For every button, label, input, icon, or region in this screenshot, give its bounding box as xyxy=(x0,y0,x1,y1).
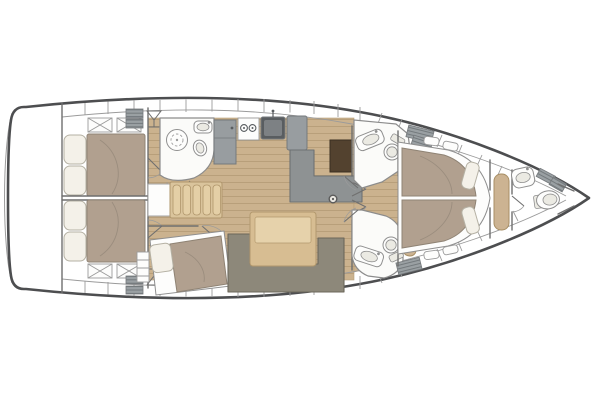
fridge xyxy=(214,120,236,164)
pillow xyxy=(149,243,174,274)
floor-plan-canvas xyxy=(0,0,600,400)
companionway xyxy=(148,182,222,218)
stove xyxy=(238,118,259,140)
galley-counter xyxy=(287,116,307,150)
pillow xyxy=(64,232,86,261)
deck-hatch xyxy=(88,264,112,278)
dining-table xyxy=(250,212,316,266)
shelf-unit xyxy=(137,252,149,282)
pillow xyxy=(64,135,86,164)
companionway-landing xyxy=(148,184,170,216)
yacht-floor-plan xyxy=(0,0,600,400)
companionway-steps xyxy=(170,182,222,218)
pillow xyxy=(64,166,86,195)
mast-post xyxy=(329,195,337,203)
single-bed xyxy=(170,236,227,292)
forward-bench-seat xyxy=(494,174,509,230)
shower-grate xyxy=(167,130,188,151)
pillow xyxy=(64,201,86,230)
dark-cabinet xyxy=(330,140,352,172)
sink xyxy=(194,121,212,133)
deck-hatch xyxy=(88,118,112,132)
